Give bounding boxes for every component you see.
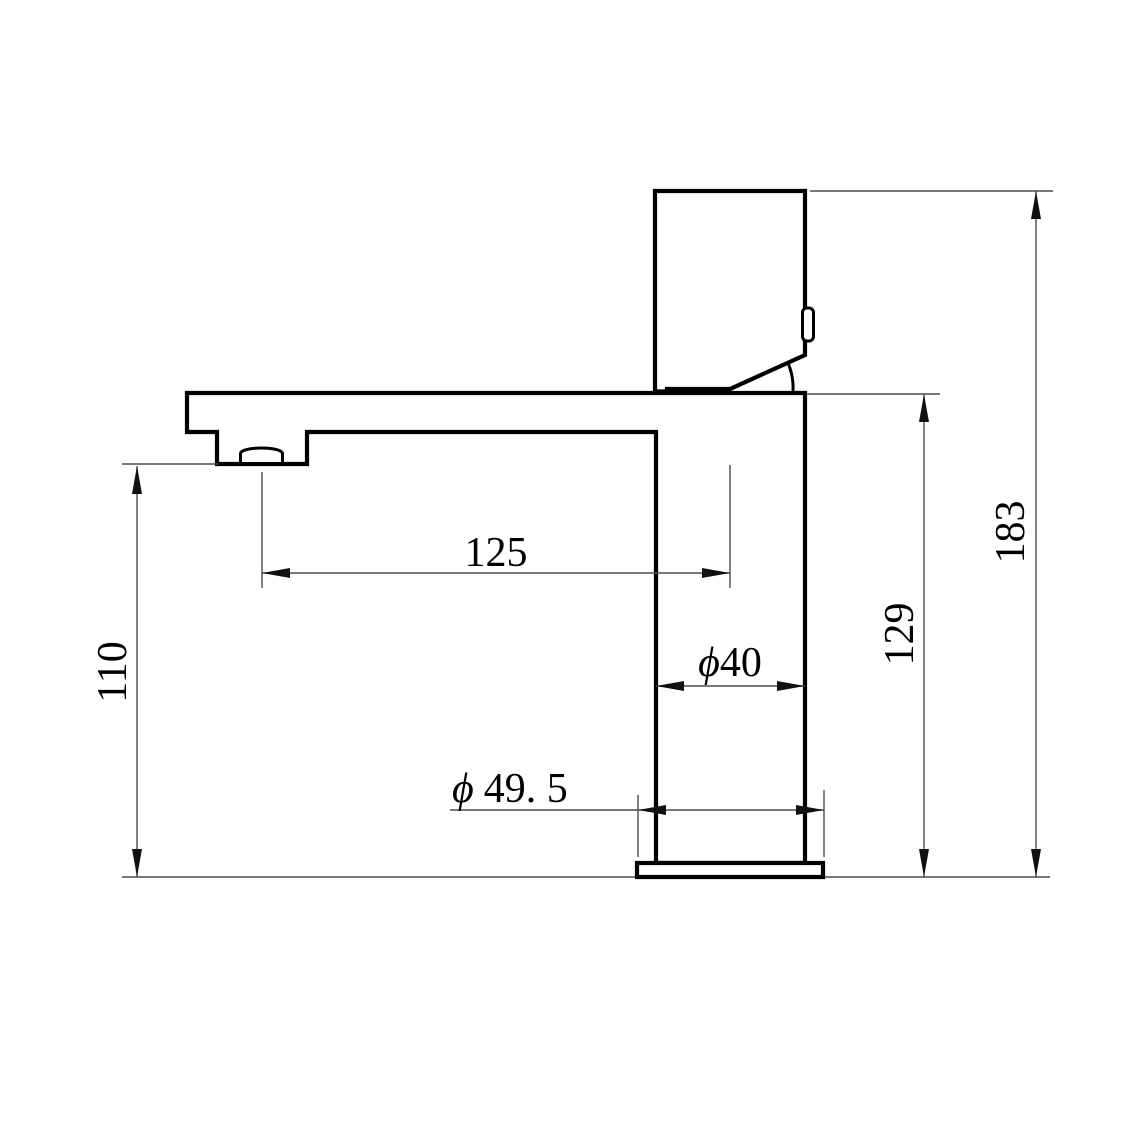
dim-label-183: 183 bbox=[988, 501, 1034, 564]
dimension-spout-height: 110 bbox=[90, 464, 218, 877]
arrow-down bbox=[132, 849, 142, 877]
dim-label-129: 129 bbox=[877, 603, 923, 666]
base-flange bbox=[637, 863, 823, 877]
arrow-right bbox=[796, 805, 824, 815]
diameter-symbol: ϕ bbox=[698, 640, 720, 686]
faucet-dimension-drawing: 110 125 ϕ40 ϕ49. 5 bbox=[0, 0, 1146, 1146]
handle-outline bbox=[655, 191, 805, 392]
arrow-down bbox=[919, 849, 929, 877]
arrow-up bbox=[1031, 191, 1041, 219]
arrow-left bbox=[638, 805, 666, 815]
arrow-left bbox=[262, 568, 290, 578]
dim-label-phi49-5: ϕ49. 5 bbox=[452, 766, 568, 812]
arrow-up bbox=[132, 466, 142, 494]
dim-label-phi40: ϕ40 bbox=[698, 640, 762, 686]
handle-swing-arc bbox=[788, 363, 793, 391]
dimension-body-height: 129 bbox=[806, 394, 940, 877]
technical-drawing-canvas: 110 125 ϕ40 ϕ49. 5 bbox=[0, 0, 1146, 1146]
dim-label-110: 110 bbox=[90, 641, 136, 702]
dim-label-125: 125 bbox=[465, 530, 528, 576]
diameter-symbol: ϕ bbox=[452, 766, 474, 812]
dimension-total-height: 183 bbox=[810, 191, 1053, 877]
arrow-down bbox=[1031, 849, 1041, 877]
aerator-insert bbox=[241, 448, 283, 463]
handle-button bbox=[803, 308, 814, 341]
arrow-up bbox=[919, 394, 929, 422]
